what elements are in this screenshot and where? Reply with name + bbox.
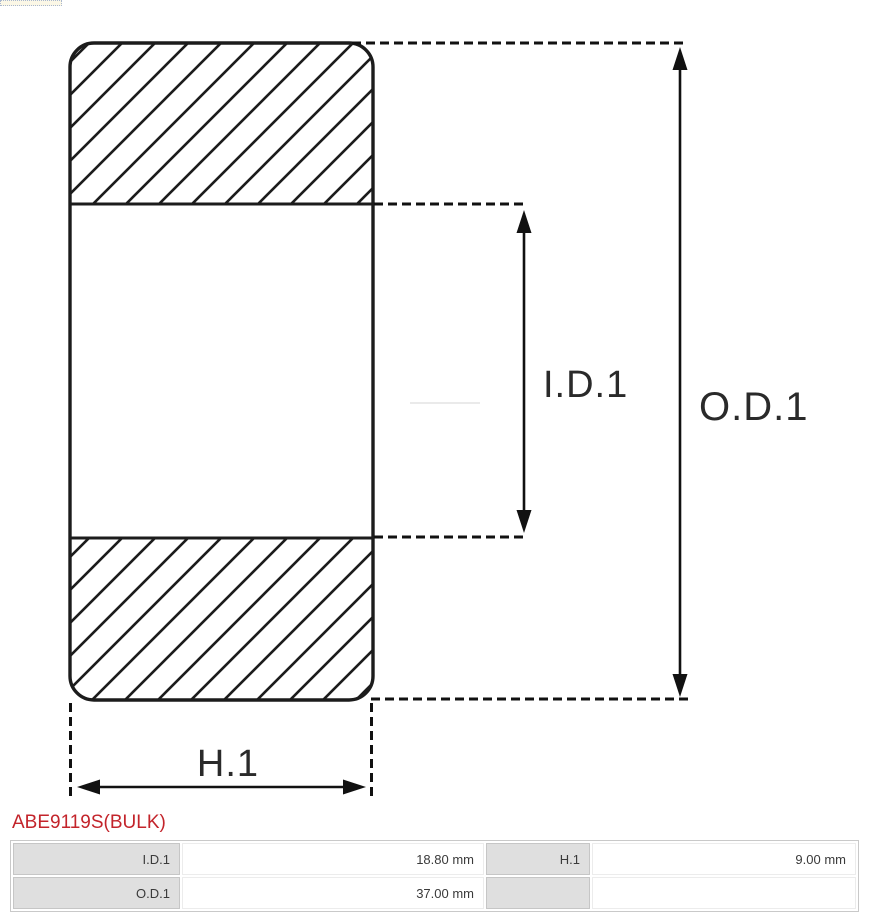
id-dimension-arrow: [517, 210, 532, 533]
h-label: H.1: [197, 743, 259, 785]
id-label: I.D.1: [543, 364, 628, 406]
dimension-value-cell: 9.00 mm: [592, 843, 856, 875]
dimension-value-cell: 37.00 mm: [182, 877, 484, 909]
dimension-name-cell: O.D.1: [13, 877, 180, 909]
product-drawing-page: { "part_number": "ABE9119S(BULK)", "diag…: [0, 0, 871, 913]
table-row: I.D.1 18.80 mm H.1 9.00 mm: [13, 843, 856, 875]
od-label: O.D.1: [699, 385, 808, 429]
dimension-name-cell: [486, 877, 590, 909]
dimension-name-cell: H.1: [486, 843, 590, 875]
dimensions-table: I.D.1 18.80 mm H.1 9.00 mm O.D.1 37.00 m…: [10, 840, 859, 912]
hatch-band-bottom: [70, 538, 373, 700]
dimension-value-cell: 18.80 mm: [182, 843, 484, 875]
dimension-value-cell: [592, 877, 856, 909]
part-number: ABE9119S(BULK): [12, 811, 852, 835]
hatch-band-top: [70, 43, 373, 204]
table-row: O.D.1 37.00 mm: [13, 877, 856, 909]
dimension-name-cell: I.D.1: [13, 843, 180, 875]
bearing-technical-drawing: I.D.1 O.D.1 H.1: [0, 0, 871, 810]
od-dimension-arrow: [673, 47, 688, 697]
